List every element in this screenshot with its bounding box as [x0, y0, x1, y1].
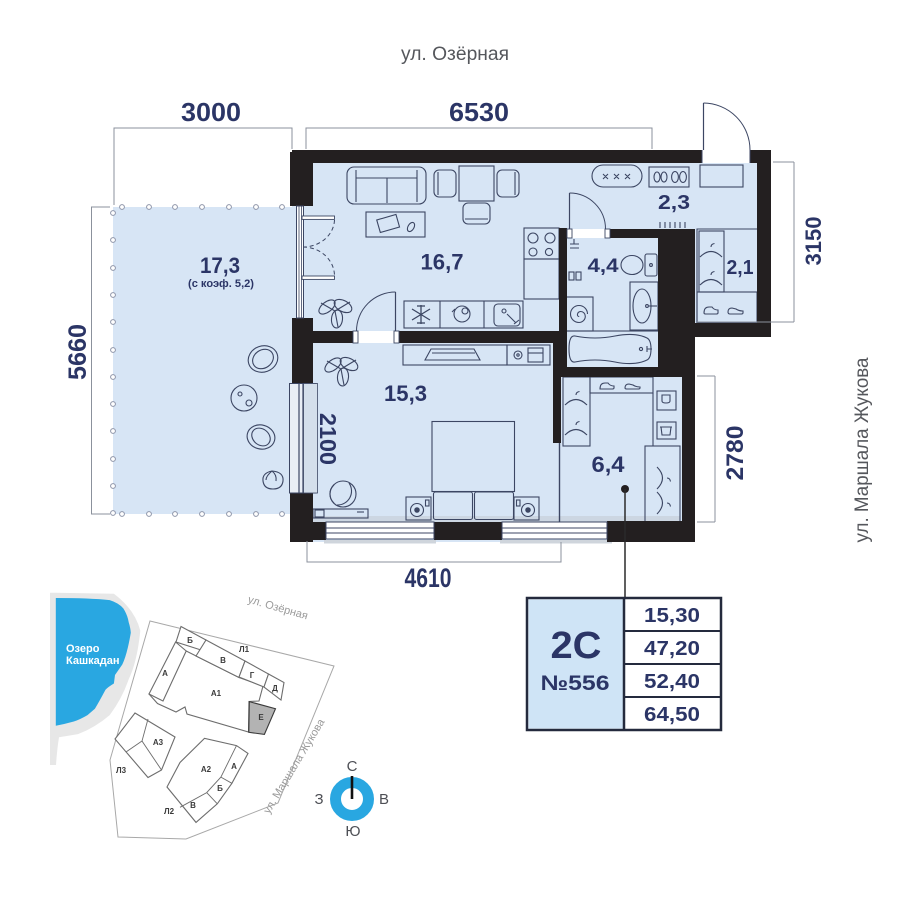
svg-text:2100: 2100 [315, 413, 341, 465]
svg-text:15,3: 15,3 [384, 381, 427, 406]
svg-text:Л2: Л2 [164, 807, 175, 816]
svg-text:2С: 2С [551, 625, 602, 667]
svg-text:Озеро: Озеро [66, 643, 100, 655]
svg-text:3150: 3150 [801, 217, 826, 266]
svg-text:Б: Б [217, 784, 223, 793]
svg-text:2,1: 2,1 [727, 257, 754, 279]
svg-text:Е: Е [258, 713, 264, 722]
svg-text:Кашкадан: Кашкадан [66, 655, 120, 667]
svg-text:А: А [162, 669, 168, 678]
svg-text:ул. Озёрная: ул. Озёрная [401, 44, 509, 65]
svg-text:16,7: 16,7 [421, 250, 464, 275]
svg-text:Л3: Л3 [116, 766, 127, 775]
svg-text:(с коэф. 5,2): (с коэф. 5,2) [188, 278, 254, 290]
svg-text:В: В [220, 656, 226, 665]
svg-text:15,30: 15,30 [644, 605, 700, 627]
svg-text:4610: 4610 [405, 563, 452, 593]
svg-text:А1: А1 [211, 689, 222, 698]
svg-text:2,3: 2,3 [658, 192, 690, 214]
svg-text:6,4: 6,4 [592, 452, 626, 477]
svg-text:З: З [314, 791, 323, 808]
svg-text:52,40: 52,40 [644, 671, 700, 693]
svg-text:Д: Д [272, 684, 278, 693]
svg-text:Г: Г [250, 671, 255, 680]
svg-text:2780: 2780 [722, 426, 749, 481]
svg-text:ул. Маршала Жукова: ул. Маршала Жукова [852, 357, 873, 542]
svg-text:В: В [379, 791, 389, 808]
svg-text:6530: 6530 [449, 97, 509, 127]
svg-text:А: А [231, 762, 237, 771]
svg-text:В: В [190, 801, 196, 810]
svg-text:Ю: Ю [345, 823, 360, 840]
svg-text:17,3: 17,3 [200, 253, 240, 278]
svg-text:5660: 5660 [64, 324, 92, 380]
svg-text:А2: А2 [201, 765, 212, 774]
svg-text:А3: А3 [153, 738, 164, 747]
svg-text:Л1: Л1 [239, 645, 250, 654]
svg-text:№556: №556 [541, 672, 610, 695]
svg-text:47,20: 47,20 [644, 638, 700, 660]
svg-text:С: С [347, 758, 358, 775]
svg-text:64,50: 64,50 [644, 704, 700, 726]
svg-text:4,4: 4,4 [588, 255, 619, 277]
svg-text:Б: Б [187, 636, 193, 645]
svg-text:3000: 3000 [181, 97, 241, 127]
